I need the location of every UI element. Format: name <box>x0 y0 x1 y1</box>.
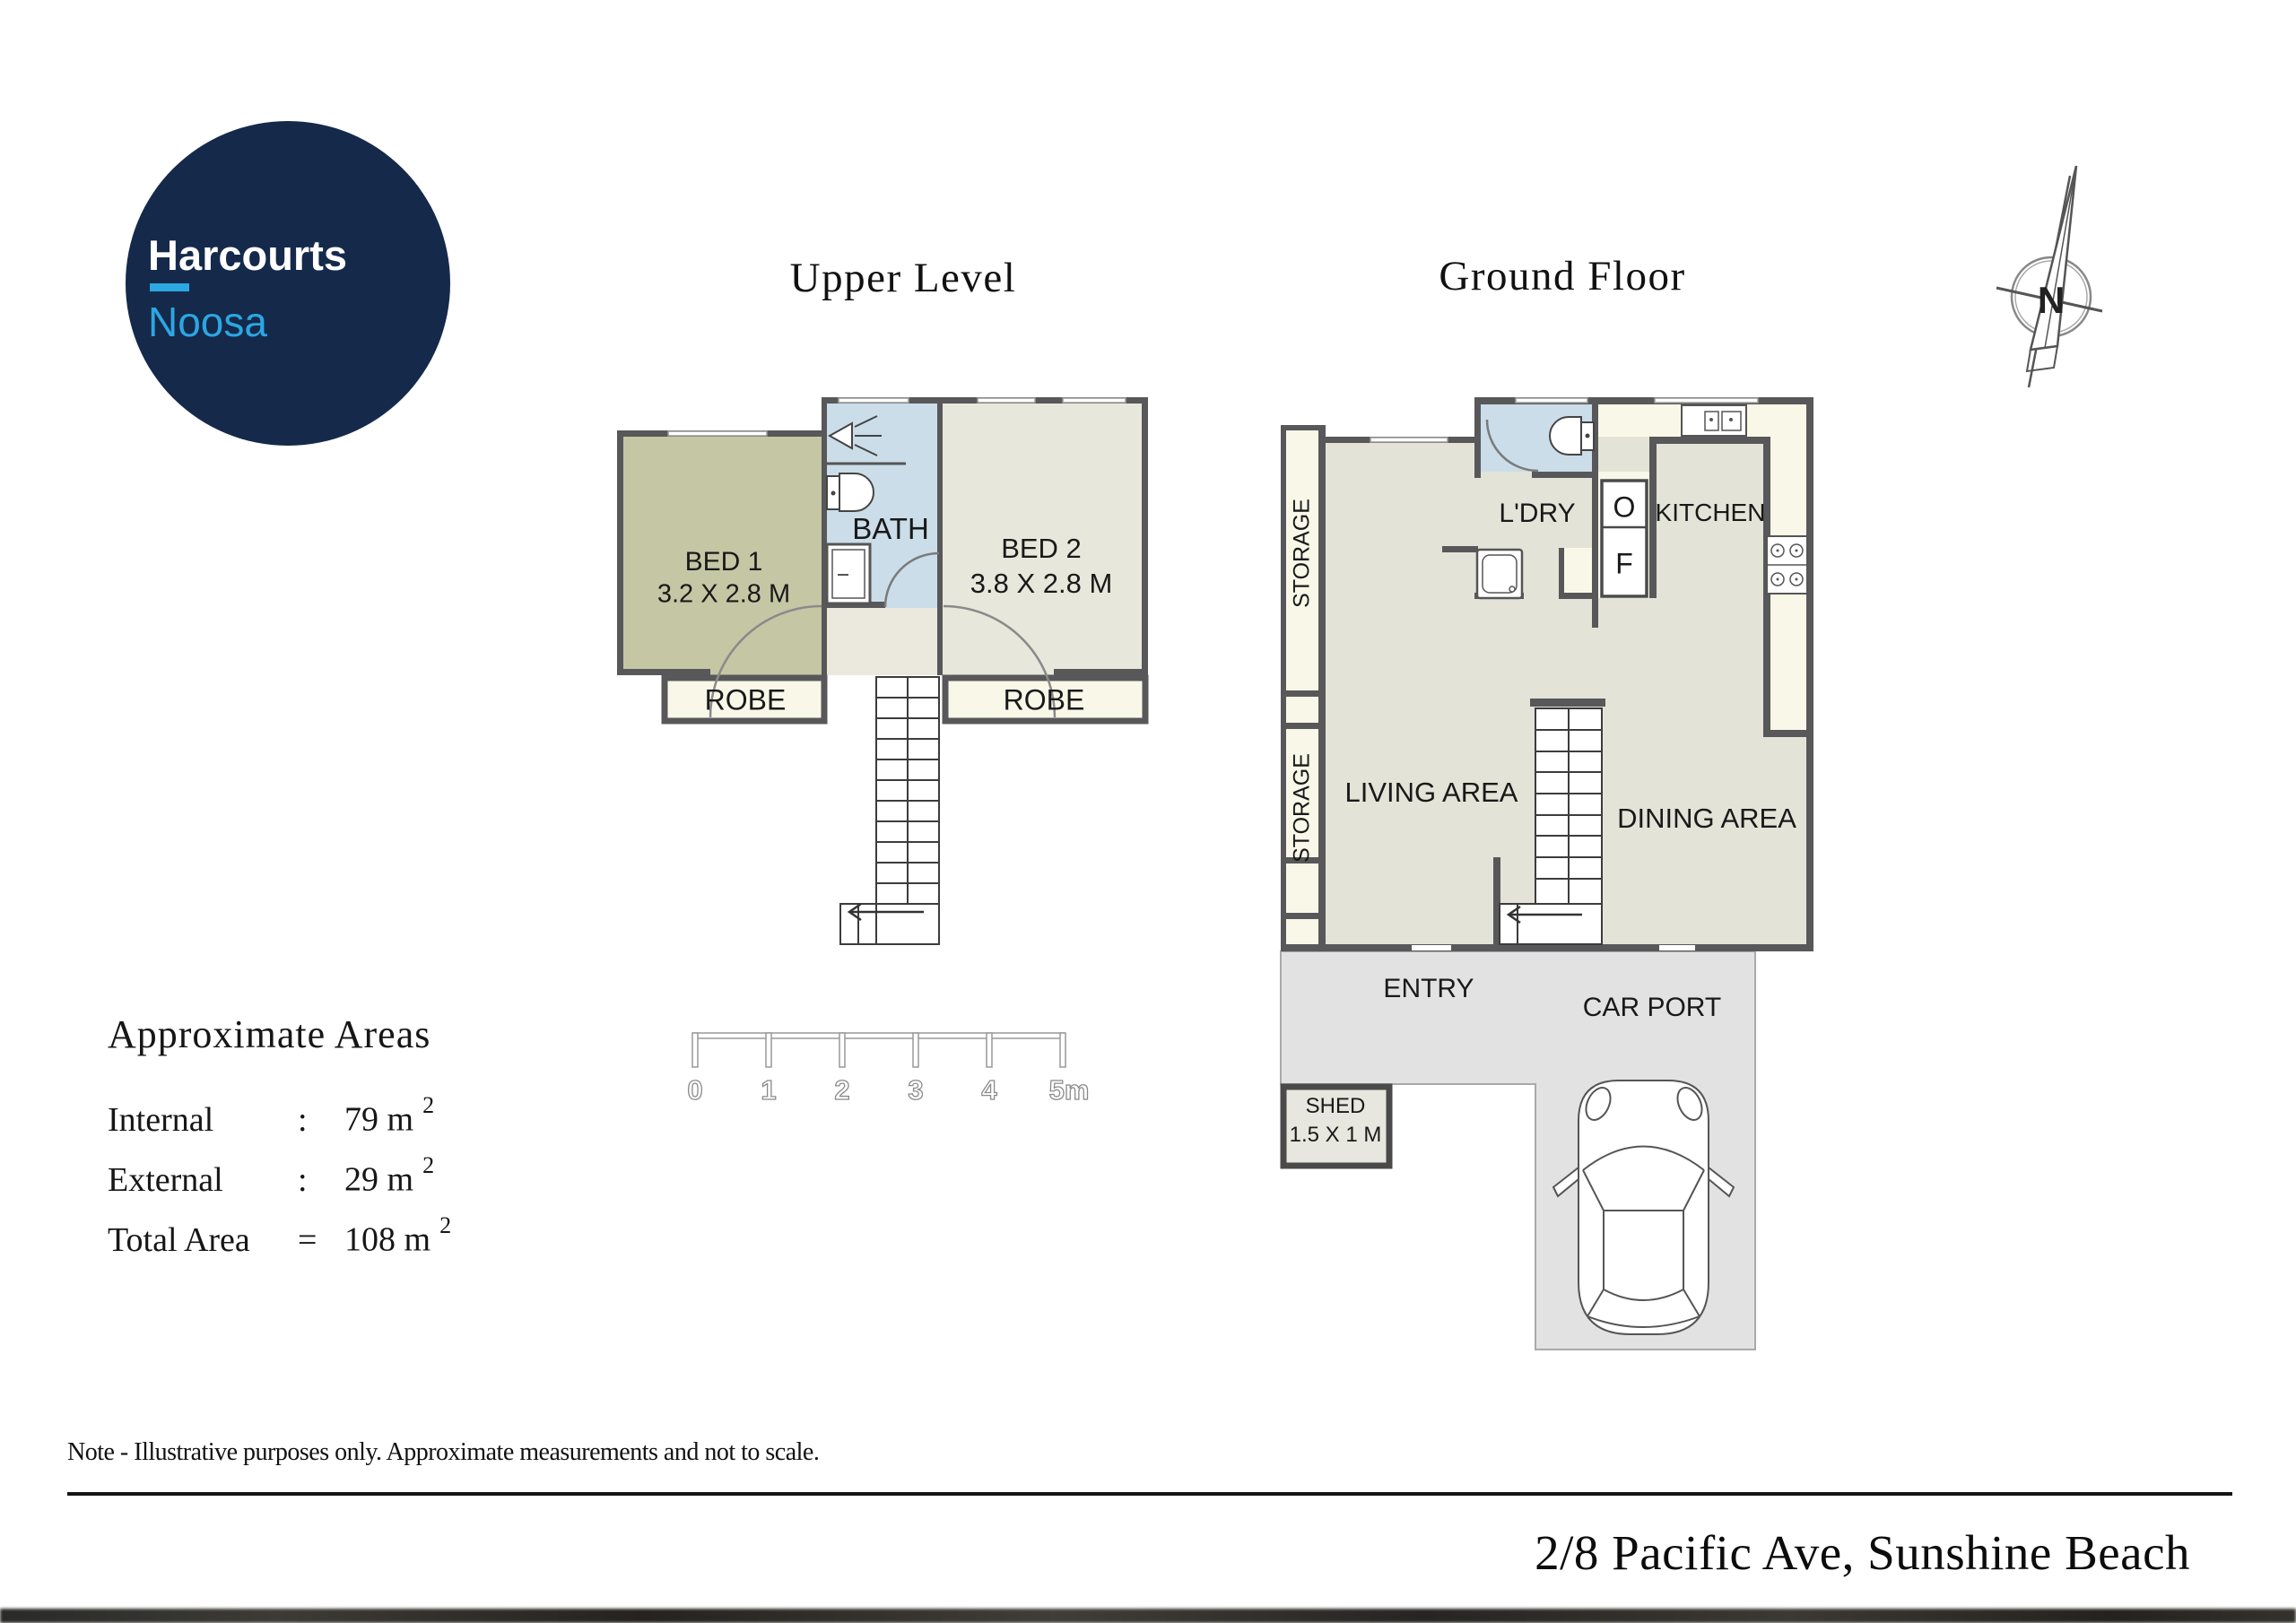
area-sup: 2 <box>422 1152 434 1178</box>
area-sup: 2 <box>422 1092 434 1118</box>
bottom-edge-strip <box>0 1609 2296 1623</box>
area-separator: : <box>298 1100 344 1140</box>
areas-heading: Approximate Areas <box>108 1011 430 1057</box>
ldry-label: L'DRY <box>1499 499 1575 529</box>
text-layer: Harcourts Noosa Upper Level Ground Floor… <box>0 0 2296 1623</box>
area-separator: = <box>298 1220 344 1260</box>
bed1-dims-label: 3.2 X 2.8 M <box>657 580 790 610</box>
area-row-total: Total Area=108 m2 <box>108 1218 442 1260</box>
bed2-label: BED 2 <box>1001 533 1082 565</box>
logo-underline <box>150 283 189 291</box>
logo-brand-text: Harcourts <box>148 230 347 280</box>
robe-left-label: ROBE <box>705 684 787 717</box>
area-sup: 2 <box>439 1212 451 1238</box>
area-label: Internal <box>108 1100 298 1140</box>
kitchen-label: KITCHEN <box>1656 499 1766 527</box>
carport-label: CAR PORT <box>1583 993 1721 1023</box>
bed2-dims-label: 3.8 X 2.8 M <box>970 568 1113 600</box>
dining-area-label: DINING AREA <box>1617 803 1796 835</box>
area-label: External <box>108 1160 298 1200</box>
bath-label: BATH <box>852 512 929 546</box>
shed-label: SHED <box>1306 1094 1366 1119</box>
area-value: 79 m <box>344 1101 413 1139</box>
logo-office-text: Noosa <box>148 298 267 346</box>
entry-label: ENTRY <box>1383 974 1474 1004</box>
divider-line <box>67 1492 2232 1496</box>
harcourts-noosa-logo: Harcourts Noosa <box>126 121 450 446</box>
robe-right-label: ROBE <box>1004 684 1085 717</box>
oven-label: O <box>1613 491 1636 525</box>
area-row-internal: Internal:79 m2 <box>108 1098 425 1140</box>
area-separator: : <box>298 1160 344 1200</box>
property-address: 2/8 Pacific Ave, Sunshine Beach <box>1535 1524 2190 1581</box>
fridge-label: F <box>1615 548 1633 581</box>
area-value: 108 m <box>344 1221 430 1259</box>
ground-floor-title: Ground Floor <box>1439 252 1685 300</box>
shed-dims-label: 1.5 X 1 M <box>1290 1123 1382 1148</box>
area-row-external: External:29 m2 <box>108 1158 425 1200</box>
area-value: 29 m <box>344 1161 413 1199</box>
upper-level-title: Upper Level <box>790 254 1017 302</box>
storage-upper-label: STORAGE <box>1290 499 1316 608</box>
area-label: Total Area <box>108 1220 298 1260</box>
approximate-areas-block: Approximate Areas Internal:79 m2 Externa… <box>108 1011 610 1280</box>
living-area-label: LIVING AREA <box>1345 777 1518 809</box>
bed1-label: BED 1 <box>685 547 763 577</box>
disclaimer-note: Note - Illustrative purposes only. Appro… <box>67 1438 819 1467</box>
storage-lower-label: STORAGE <box>1290 753 1316 863</box>
